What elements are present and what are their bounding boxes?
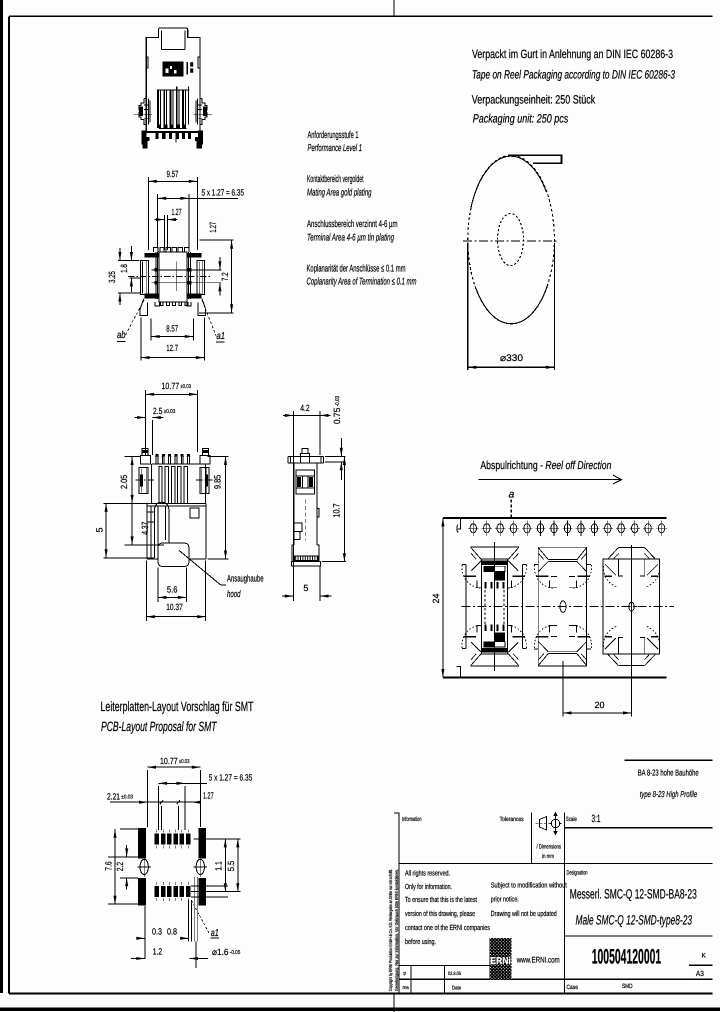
svg-text:Performance Level 1: Performance Level 1 — [308, 143, 363, 154]
svg-text:hood: hood — [227, 589, 241, 600]
svg-text:Terminal Area 4-6 µm tin plati: Terminal Area 4-6 µm tin plating — [307, 232, 394, 243]
svg-text:Coplanarity Area of Terminatio: Coplanarity Area of Termination ≤ 0.1 mm — [307, 277, 417, 288]
svg-text:Leiterplatten-Layout Vorschlag: Leiterplatten-Layout Vorschlag für SMT — [101, 699, 254, 714]
svg-text:1.8: 1.8 — [119, 264, 129, 273]
svg-text:prior notice.: prior notice. — [491, 895, 519, 904]
svg-text:Anforderungsstufe 1: Anforderungsstufe 1 — [308, 130, 359, 141]
svg-text:ab: ab — [117, 330, 126, 341]
svg-text:24: 24 — [431, 593, 441, 603]
svg-text:4.37: 4.37 — [140, 522, 150, 535]
svg-text:in mm: in mm — [542, 853, 554, 860]
svg-text:1.27: 1.27 — [208, 222, 218, 233]
svg-text:Male SMC-Q 12-SMD-type8-23: Male SMC-Q 12-SMD-type8-23 — [576, 913, 693, 928]
svg-text:20: 20 — [595, 700, 605, 710]
svg-text:To ensure that this is the lat: To ensure that this is the latest — [405, 895, 477, 904]
svg-text:Anschlussbereich verzinnt 4-6: Anschlussbereich verzinnt 4-6 µm — [307, 219, 398, 230]
svg-text:1.27: 1.27 — [203, 790, 214, 800]
svg-text:Kontaktbereich vergoldet: Kontaktbereich vergoldet — [307, 174, 364, 185]
svg-text:12.7: 12.7 — [166, 343, 178, 353]
svg-text:before using.: before using. — [405, 937, 436, 946]
svg-text:a1: a1 — [217, 331, 226, 342]
svg-text:5 x 1.27 = 6.35: 5 x 1.27 = 6.35 — [209, 772, 253, 782]
svg-text:Date: Date — [452, 986, 462, 992]
svg-text:Case: Case — [567, 984, 579, 991]
svg-text:Copyright by ERNI Produktion G: Copyright by ERNI Produktion GmbH & Co. … — [388, 869, 393, 991]
svg-text:Abspulrichtung - Reel off Dire: Abspulrichtung - Reel off Direction — [480, 460, 611, 472]
svg-text:0.8: 0.8 — [167, 927, 177, 937]
svg-text:Designation: Designation — [567, 870, 588, 877]
svg-text:8.57: 8.57 — [166, 323, 178, 333]
svg-text:0.3: 0.3 — [152, 927, 162, 937]
svg-text:2.05: 2.05 — [119, 475, 129, 489]
svg-text:p: p — [404, 972, 407, 977]
svg-text:Messerl. SMC-Q 12-SMD-BA8-23: Messerl. SMC-Q 12-SMD-BA8-23 — [570, 887, 697, 902]
svg-text:Only for information.: Only for information. — [405, 882, 452, 891]
svg-text:9.57: 9.57 — [167, 169, 179, 179]
svg-text:Drawing will not be updated: Drawing will not be updated — [491, 909, 557, 918]
svg-text:a: a — [509, 489, 515, 501]
svg-text:Genehmigung. Nur zur Informati: Genehmigung. Nur zur Information. Vor Ge… — [394, 869, 399, 991]
svg-text:SMD: SMD — [622, 983, 633, 990]
svg-text:7.6: 7.6 — [103, 861, 113, 870]
svg-text:All rights reserved.: All rights reserved. — [405, 868, 450, 877]
svg-text:Subject to modification withou: Subject to modification without — [491, 881, 567, 890]
svg-text:⌀330: ⌀330 — [500, 353, 523, 364]
svg-text:Verpackungseinheit: 250 Stück: Verpackungseinheit: 250 Stück — [472, 93, 596, 107]
svg-text:4.2: 4.2 — [300, 403, 309, 413]
svg-text:10.7: 10.7 — [332, 503, 342, 517]
svg-text:www.ERNI.com: www.ERNI.com — [516, 956, 560, 965]
svg-text:1.2: 1.2 — [153, 947, 162, 957]
svg-text:100504120001: 100504120001 — [592, 946, 662, 969]
svg-text:7.2: 7.2 — [220, 272, 230, 281]
svg-text:version of this drawing, pleas: version of this drawing, please — [405, 909, 475, 918]
svg-text:2.2: 2.2 — [115, 862, 125, 871]
svg-text:K: K — [702, 953, 707, 960]
svg-text:/ Dimensions: / Dimensions — [537, 844, 562, 851]
svg-text:contact one of the ERNI compan: contact one of the ERNI companies — [405, 923, 490, 932]
svg-text:Packaging unit: 250 pcs: Packaging unit: 250 pcs — [473, 112, 569, 126]
svg-text:5: 5 — [95, 527, 105, 532]
svg-text:Mating Area gold plating: Mating Area gold plating — [307, 187, 372, 198]
svg-text:5 x 1.27 = 6.35: 5 x 1.27 = 6.35 — [202, 188, 245, 198]
svg-text:5.5: 5.5 — [226, 861, 236, 872]
svg-text:1.1: 1.1 — [214, 861, 224, 871]
svg-text:Ansaughaube: Ansaughaube — [227, 574, 264, 585]
svg-text:Scale: Scale — [566, 816, 577, 823]
svg-text:3.25: 3.25 — [107, 271, 117, 283]
svg-text:BA 8-23 hohe Bauhöhe: BA 8-23 hohe Bauhöhe — [638, 768, 699, 778]
svg-text:type 8-23 High Profile: type 8-23 High Profile — [640, 789, 698, 799]
svg-text:Tolerances: Tolerances — [500, 816, 524, 823]
svg-text:10.37: 10.37 — [166, 602, 183, 612]
svg-text:3:1: 3:1 — [592, 813, 601, 825]
svg-text:Verpackt im Gurt in Anlehnung: Verpackt im Gurt in Anlehnung an DIN IEC… — [472, 47, 673, 61]
svg-text:5: 5 — [303, 583, 308, 593]
svg-text:ERNi: ERNi — [490, 956, 511, 967]
svg-text:Koplanarität der Anschlüsse ≤: Koplanarität der Anschlüsse ≤ 0.1 mm — [307, 263, 406, 274]
svg-text:5.6: 5.6 — [167, 585, 178, 595]
svg-text:A3: A3 — [696, 969, 704, 978]
svg-text:1.27: 1.27 — [172, 207, 182, 217]
svg-text:Information: Information — [402, 816, 422, 823]
svg-text:PCB-Layout Proposal for SMT: PCB-Layout Proposal for SMT — [101, 719, 218, 734]
svg-text:ms: ms — [403, 986, 410, 991]
svg-text:9.85: 9.85 — [212, 475, 222, 489]
svg-text:a1: a1 — [211, 928, 219, 939]
svg-text:Tape on Reel Packaging accordi: Tape on Reel Packaging according to DIN … — [472, 68, 675, 82]
svg-text:02.9.05: 02.9.05 — [448, 971, 461, 977]
